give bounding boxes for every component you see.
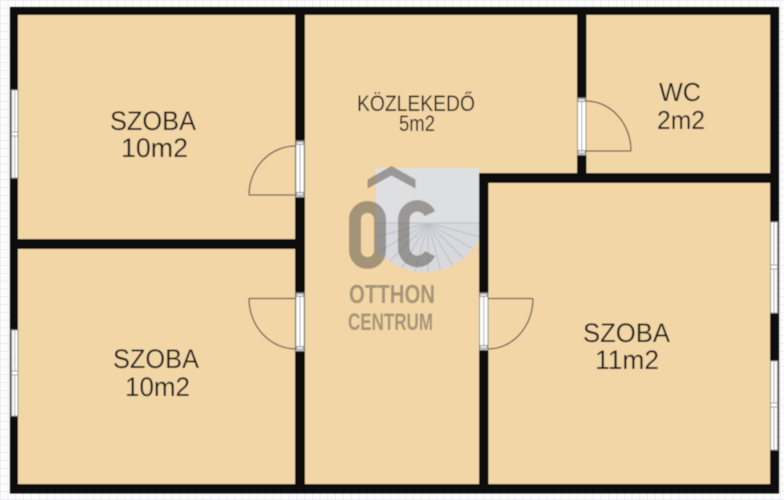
svg-text:11m2: 11m2	[595, 345, 659, 375]
svg-text:SZOBA: SZOBA	[110, 106, 196, 136]
svg-text:10m2: 10m2	[125, 372, 190, 402]
svg-text:WC: WC	[659, 77, 701, 107]
svg-text:CENTRUM: CENTRUM	[348, 309, 433, 336]
svg-text:2m2: 2m2	[657, 105, 705, 135]
svg-text:SZOBA: SZOBA	[113, 344, 199, 374]
svg-text:10m2: 10m2	[121, 133, 188, 163]
svg-text:OTTHON: OTTHON	[349, 281, 435, 309]
svg-text:5m2: 5m2	[399, 111, 435, 136]
svg-text:SZOBA: SZOBA	[583, 318, 670, 348]
